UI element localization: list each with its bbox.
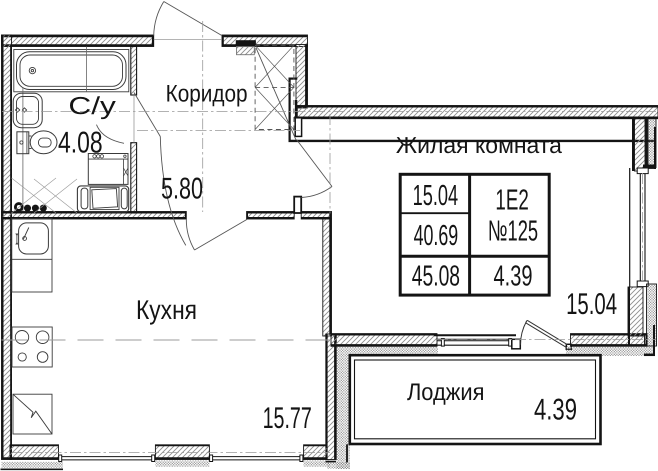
svg-text:40.69: 40.69 xyxy=(414,220,459,252)
svg-text:45.08: 45.08 xyxy=(412,261,460,293)
svg-text:1Е2: 1Е2 xyxy=(495,185,528,217)
svg-text:Кухня: Кухня xyxy=(136,295,197,325)
svg-text:С/у: С/у xyxy=(68,93,116,120)
svg-text:Коридор: Коридор xyxy=(166,81,248,108)
svg-text:15.04: 15.04 xyxy=(413,180,459,212)
svg-text:15.04: 15.04 xyxy=(566,288,617,321)
svg-text:Лоджия: Лоджия xyxy=(407,379,485,406)
svg-text:15.77: 15.77 xyxy=(263,402,312,435)
svg-text:4.39: 4.39 xyxy=(534,394,577,427)
svg-text:4.08: 4.08 xyxy=(58,126,103,159)
svg-text:Жилая комната: Жилая комната xyxy=(396,132,562,158)
svg-text:№125: №125 xyxy=(488,216,538,248)
svg-text:4.39: 4.39 xyxy=(494,261,533,293)
svg-text:5.80: 5.80 xyxy=(161,173,203,206)
